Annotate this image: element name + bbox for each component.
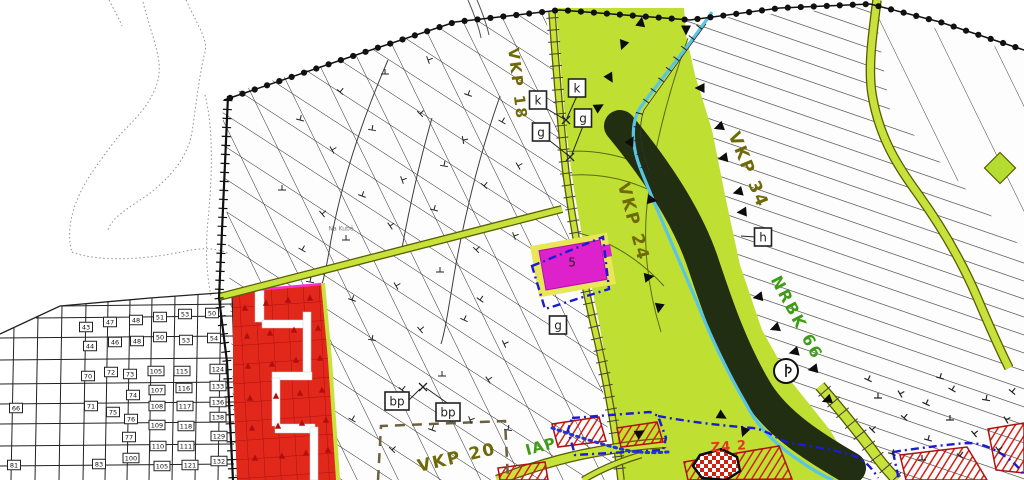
- parcel-number: 121: [182, 460, 198, 470]
- parcel-number: 44: [84, 341, 97, 351]
- svg-text:k: k: [574, 82, 581, 96]
- svg-text:116: 116: [178, 385, 190, 393]
- parcel-number: 100: [123, 453, 139, 463]
- street: [262, 320, 308, 328]
- svg-text:110: 110: [152, 443, 164, 451]
- zoning-map-canvas: kkggghbpbpVKP 18VKP 24VKP 34NRBK 66VKP 2…: [0, 0, 1024, 480]
- svg-text:75: 75: [109, 409, 117, 417]
- parcel-number: 54: [208, 333, 221, 343]
- svg-text:46: 46: [111, 339, 119, 347]
- parcel-number: 47: [104, 317, 117, 327]
- street: [272, 378, 280, 426]
- parcel-number: 138: [210, 412, 226, 422]
- parcel-number: 111: [178, 441, 194, 451]
- svg-text:g: g: [537, 126, 545, 140]
- parcel-number: 43: [80, 322, 93, 332]
- svg-text:105: 105: [156, 463, 168, 471]
- svg-text:138: 138: [212, 414, 224, 422]
- parcel-number: 53: [180, 335, 193, 345]
- parcel-number: 118: [178, 421, 194, 431]
- parcel-number: 53: [179, 309, 192, 319]
- parcel-number: 51: [154, 312, 167, 322]
- svg-text:77: 77: [125, 434, 133, 442]
- parcel-number: 71: [85, 401, 98, 411]
- svg-text:117: 117: [179, 403, 191, 411]
- svg-text:105: 105: [150, 368, 162, 376]
- svg-text:115: 115: [176, 368, 188, 376]
- parcel-number: 107: [149, 385, 165, 395]
- parcel-number: 129: [211, 431, 227, 441]
- parcel-number: 76: [125, 414, 138, 424]
- parcel-number: 74: [127, 390, 140, 400]
- parcel-number: 109: [149, 420, 165, 430]
- svg-text:71: 71: [87, 403, 95, 411]
- street: [303, 312, 311, 374]
- svg-text:g: g: [554, 319, 562, 333]
- svg-text:100: 100: [125, 455, 137, 463]
- boxed-label-k: k: [530, 91, 547, 109]
- boxed-label-g: g: [550, 316, 567, 334]
- boxed-label-bp: bp: [385, 392, 409, 410]
- svg-text:111: 111: [180, 443, 192, 451]
- boxed-label-bp: bp: [436, 403, 460, 421]
- parcel-number: 136: [210, 397, 226, 407]
- svg-text:121: 121: [184, 462, 196, 470]
- svg-text:83: 83: [95, 461, 103, 469]
- svg-text:129: 129: [213, 433, 225, 441]
- svg-text:50: 50: [208, 310, 216, 318]
- parcel-number: 70: [82, 371, 95, 381]
- parcel-number: 132: [211, 456, 227, 466]
- boxed-label-g: g: [533, 123, 550, 141]
- parcel-number: 108: [149, 401, 165, 411]
- svg-text:g: g: [579, 112, 587, 126]
- parcel-number: 75: [107, 407, 120, 417]
- parcel-number: 50: [206, 308, 219, 318]
- parcel-number: 77: [123, 432, 136, 442]
- svg-text:k: k: [535, 94, 542, 108]
- svg-text:53: 53: [181, 311, 189, 319]
- parcel-number: 73: [124, 369, 137, 379]
- boxed-label-h: h: [755, 228, 772, 246]
- boxed-label-g: g: [575, 109, 592, 127]
- svg-text:51: 51: [156, 314, 164, 322]
- svg-text:44: 44: [86, 343, 94, 351]
- svg-text:53: 53: [182, 337, 190, 345]
- parcel-number: 105: [148, 366, 164, 376]
- svg-text:48: 48: [133, 338, 141, 346]
- street: [255, 288, 264, 322]
- svg-text:81: 81: [10, 462, 18, 470]
- parcel-number: 124: [210, 364, 226, 374]
- parcel-number: 81: [8, 460, 21, 470]
- parcel-number: 72: [105, 367, 118, 377]
- parcel-number: 50: [154, 332, 167, 342]
- label-parcel-5: 5: [568, 256, 576, 270]
- parcel-number: 133: [210, 381, 226, 391]
- svg-text:48: 48: [132, 317, 140, 325]
- svg-text:76: 76: [127, 416, 135, 424]
- parcel-number: 116: [176, 383, 192, 393]
- svg-text:118: 118: [180, 423, 192, 431]
- parcel-number: 46: [109, 337, 122, 347]
- svg-text:73: 73: [126, 371, 134, 379]
- boxed-label-k: k: [569, 79, 586, 97]
- zoning-map-svg: kkggghbpbpVKP 18VKP 24VKP 34NRBK 66VKP 2…: [0, 0, 1024, 480]
- parcel-number: 83: [93, 459, 106, 469]
- svg-text:107: 107: [151, 387, 163, 395]
- svg-text:136: 136: [212, 399, 224, 407]
- svg-text:72: 72: [107, 369, 115, 377]
- svg-text:66: 66: [12, 405, 20, 413]
- svg-text:108: 108: [151, 403, 163, 411]
- svg-text:132: 132: [213, 458, 225, 466]
- svg-text:bp: bp: [440, 406, 455, 420]
- street: [310, 427, 318, 480]
- svg-text:109: 109: [151, 422, 163, 430]
- parcel-number: 66: [10, 403, 23, 413]
- svg-text:50: 50: [156, 334, 164, 342]
- svg-text:43: 43: [82, 324, 90, 332]
- svg-text:74: 74: [129, 392, 137, 400]
- svg-text:54: 54: [210, 335, 218, 343]
- svg-text:133: 133: [212, 383, 224, 391]
- svg-text:bp: bp: [389, 395, 404, 409]
- parcel-number: 48: [131, 336, 144, 346]
- parcel-number: 105: [154, 461, 170, 471]
- svg-text:47: 47: [106, 319, 114, 327]
- svg-text:h: h: [759, 231, 767, 245]
- parcel-number: 115: [174, 366, 190, 376]
- label-na-kube: Na Kubě: [328, 226, 353, 233]
- svg-text:70: 70: [84, 373, 92, 381]
- parcel-number: 48: [130, 315, 143, 325]
- red-development-zone: [231, 283, 338, 480]
- label-z4-2: Z4 2: [710, 438, 747, 455]
- parcel-number: 110: [150, 441, 166, 451]
- svg-text:124: 124: [212, 366, 224, 374]
- parcel-number: 117: [177, 401, 193, 411]
